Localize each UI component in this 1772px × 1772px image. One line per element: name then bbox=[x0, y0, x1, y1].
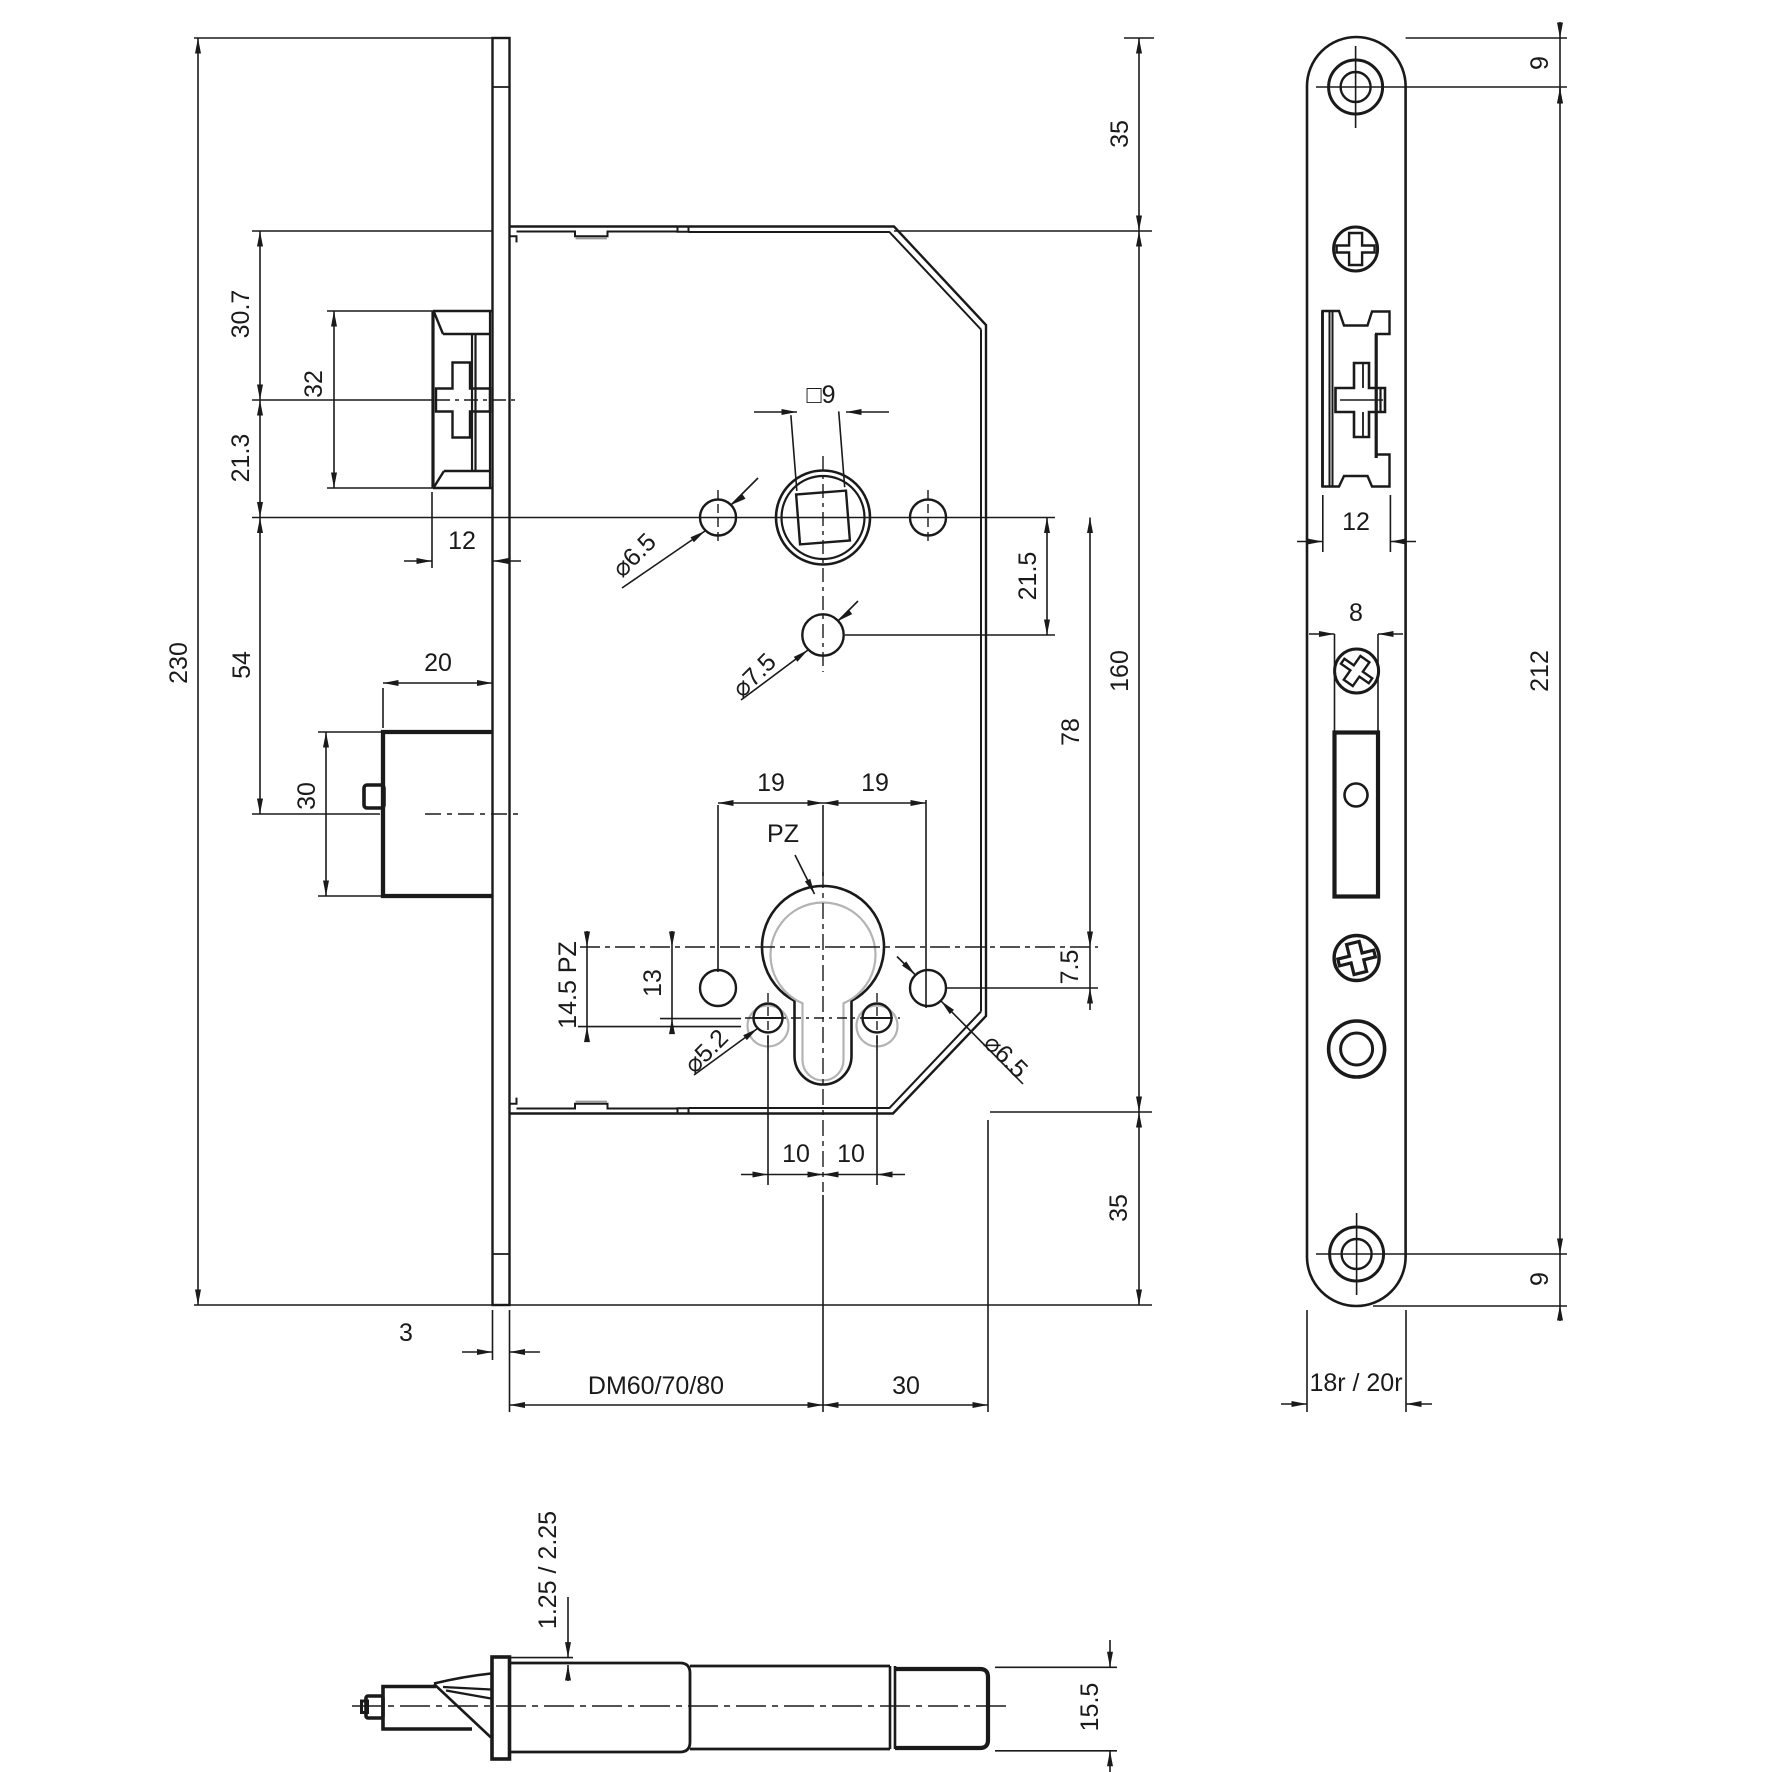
svg-text:9: 9 bbox=[1526, 56, 1554, 70]
svg-text:32: 32 bbox=[300, 370, 328, 398]
svg-text:10: 10 bbox=[837, 1140, 865, 1168]
svg-text:30: 30 bbox=[892, 1372, 920, 1400]
svg-text:30: 30 bbox=[293, 782, 321, 810]
svg-text:18r / 20r: 18r / 20r bbox=[1309, 1369, 1402, 1397]
svg-text:230: 230 bbox=[165, 642, 193, 684]
svg-text:PZ: PZ bbox=[767, 820, 799, 848]
svg-text:□9: □9 bbox=[806, 381, 835, 409]
svg-text:54: 54 bbox=[228, 651, 256, 679]
svg-text:30.7: 30.7 bbox=[227, 290, 255, 339]
svg-text:13: 13 bbox=[639, 969, 667, 997]
svg-text:DM60/70/80: DM60/70/80 bbox=[588, 1372, 724, 1400]
svg-text:15.5: 15.5 bbox=[1076, 1683, 1104, 1732]
svg-text:78: 78 bbox=[1057, 718, 1085, 746]
svg-text:1.25 / 2.25: 1.25 / 2.25 bbox=[534, 1511, 562, 1629]
svg-text:12: 12 bbox=[448, 527, 476, 555]
svg-text:9: 9 bbox=[1526, 1272, 1554, 1286]
svg-text:35: 35 bbox=[1106, 120, 1134, 148]
svg-text:7.5: 7.5 bbox=[1056, 950, 1084, 985]
svg-text:10: 10 bbox=[782, 1140, 810, 1168]
svg-text:8: 8 bbox=[1349, 599, 1363, 627]
svg-text:12: 12 bbox=[1342, 508, 1370, 536]
svg-text:3: 3 bbox=[399, 1319, 413, 1347]
svg-text:35: 35 bbox=[1105, 1194, 1133, 1222]
svg-text:21.5: 21.5 bbox=[1014, 552, 1042, 601]
svg-text:21.3: 21.3 bbox=[227, 434, 255, 483]
svg-text:20: 20 bbox=[424, 649, 452, 677]
svg-text:212: 212 bbox=[1526, 650, 1554, 692]
svg-text:19: 19 bbox=[861, 769, 889, 797]
svg-text:160: 160 bbox=[1106, 650, 1134, 692]
svg-text:19: 19 bbox=[757, 769, 785, 797]
svg-text:14.5 PZ: 14.5 PZ bbox=[554, 941, 582, 1029]
